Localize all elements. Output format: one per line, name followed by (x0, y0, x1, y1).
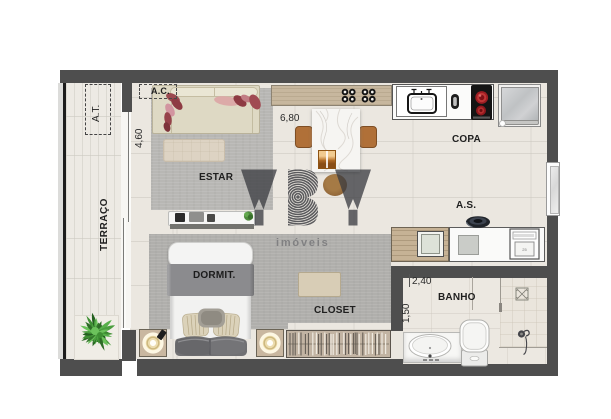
svg-text:imóveis: imóveis (276, 237, 330, 249)
svg-text:25: 25 (522, 247, 527, 252)
